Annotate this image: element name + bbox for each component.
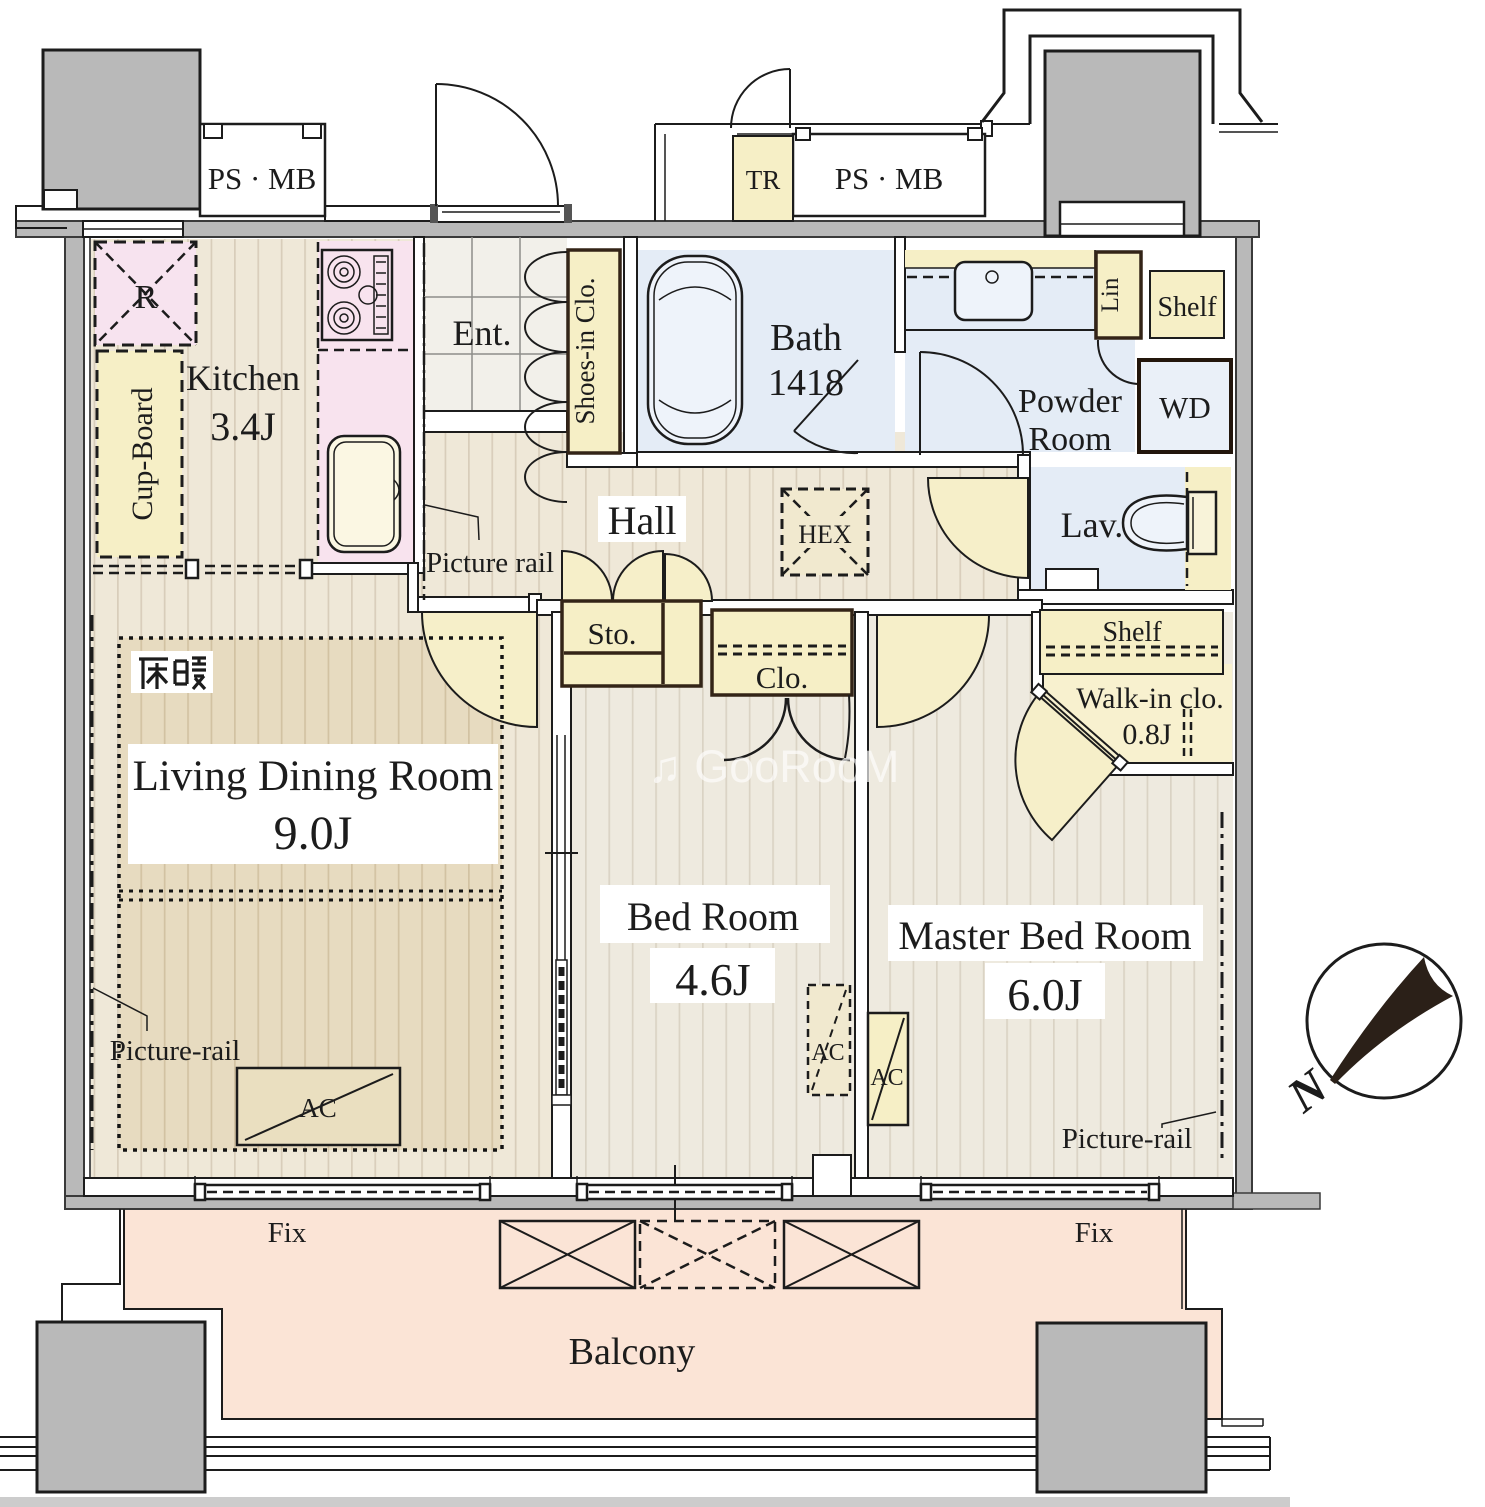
svg-text:Hall: Hall (608, 498, 677, 543)
svg-text:Shelf: Shelf (1102, 617, 1162, 648)
svg-text:1418: 1418 (768, 362, 844, 404)
svg-text:AC: AC (299, 1093, 337, 1123)
svg-text:PS · MB: PS · MB (835, 161, 944, 196)
svg-text:Sto.: Sto. (587, 616, 636, 651)
svg-text:Lin: Lin (1097, 277, 1124, 312)
svg-text:Picture-rail: Picture-rail (110, 1035, 240, 1067)
svg-text:Shelf: Shelf (1157, 292, 1217, 323)
svg-text:HEX: HEX (798, 520, 852, 549)
svg-text:AC: AC (811, 1040, 844, 1066)
svg-text:0.8J: 0.8J (1122, 718, 1172, 751)
svg-text:Picture rail: Picture rail (426, 547, 554, 579)
svg-text:Fix: Fix (268, 1217, 307, 1249)
svg-text:♫ GooRooM: ♫ GooRooM (648, 741, 899, 792)
svg-text:Fix: Fix (1075, 1217, 1114, 1249)
svg-text:Kitchen: Kitchen (186, 358, 300, 398)
svg-text:9.0J: 9.0J (274, 807, 353, 860)
svg-text:6.0J: 6.0J (1007, 969, 1082, 1020)
svg-text:PS · MB: PS · MB (208, 161, 317, 196)
svg-text:R: R (135, 279, 158, 316)
svg-text:3.4J: 3.4J (210, 404, 276, 449)
svg-text:Cup-Board: Cup-Board (126, 387, 159, 520)
svg-text:Powder: Powder (1018, 383, 1123, 420)
svg-text:Lav.: Lav. (1061, 505, 1124, 545)
svg-text:Room: Room (1028, 421, 1111, 458)
svg-text:WD: WD (1159, 390, 1211, 425)
svg-text:Master Bed Room: Master Bed Room (898, 913, 1191, 958)
svg-text:4.6J: 4.6J (675, 954, 750, 1005)
svg-text:Bath: Bath (770, 317, 842, 359)
svg-text:Picture-rail: Picture-rail (1062, 1123, 1192, 1155)
svg-text:Living Dining Room: Living Dining Room (133, 753, 494, 800)
svg-text:Walk-in clo.: Walk-in clo. (1076, 682, 1224, 715)
svg-text:Shoes-in Clo.: Shoes-in Clo. (570, 277, 600, 424)
svg-text:Balcony: Balcony (569, 1331, 696, 1373)
svg-text:TR: TR (746, 165, 781, 195)
svg-text:Clo.: Clo. (756, 660, 809, 695)
svg-text:Bed Room: Bed Room (627, 894, 799, 939)
svg-text:Ent.: Ent. (453, 313, 512, 353)
svg-text:AC: AC (870, 1065, 903, 1091)
